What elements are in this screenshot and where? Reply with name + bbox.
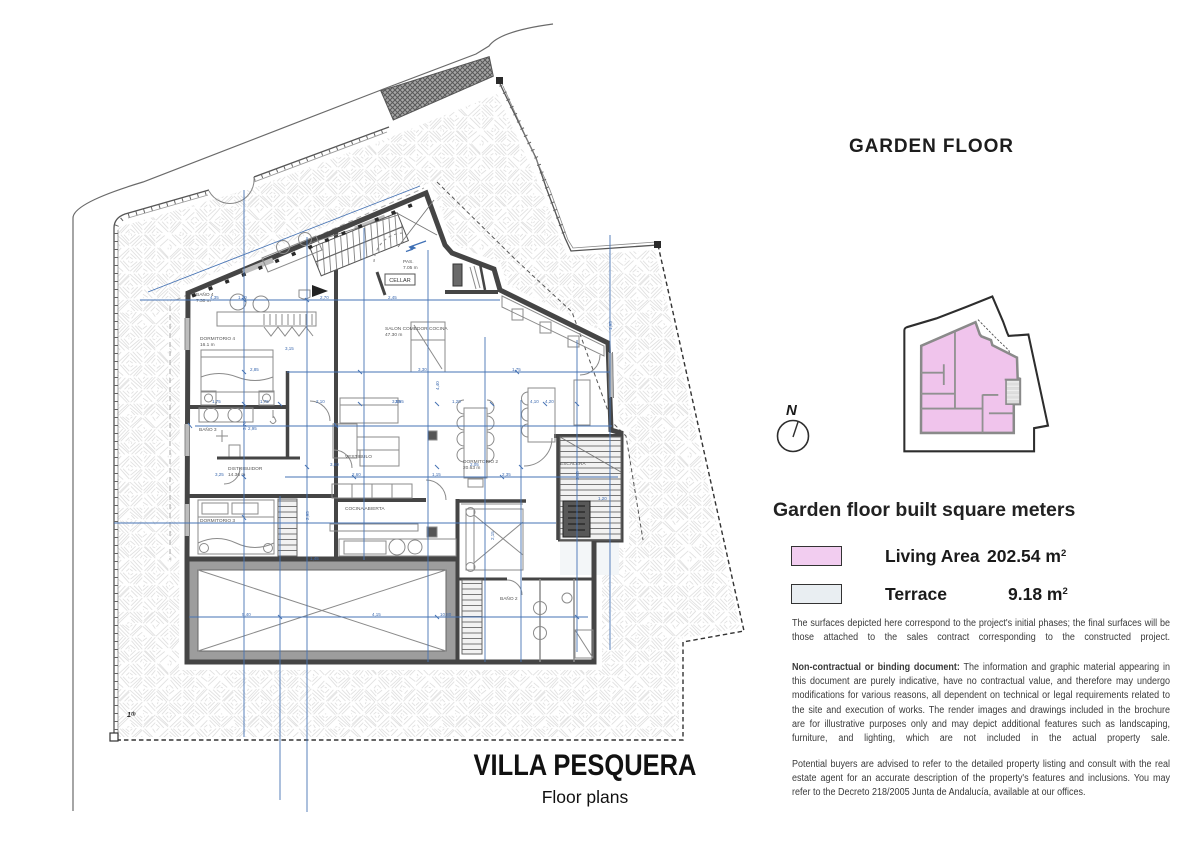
svg-text:BAÑO 3: BAÑO 3 <box>199 426 217 433</box>
svg-text:3,15: 3,15 <box>285 346 294 351</box>
svg-text:1,20: 1,20 <box>452 399 461 404</box>
svg-text:2,85: 2,85 <box>250 367 259 372</box>
svg-text:PAS.: PAS. <box>403 259 414 265</box>
svg-text:1ᵗᵇ: 1ᵗᵇ <box>127 712 136 719</box>
svg-text:SALON COMEDOR COCINA: SALON COMEDOR COCINA <box>385 326 448 332</box>
svg-text:BAÑO 2: BAÑO 2 <box>500 595 518 602</box>
svg-text:10,80: 10,80 <box>440 612 452 617</box>
svg-text:3,05: 3,05 <box>575 471 580 480</box>
svg-text:1,45: 1,45 <box>310 556 319 561</box>
svg-text:1,75: 1,75 <box>260 399 269 404</box>
svg-text:2,95: 2,95 <box>248 426 257 431</box>
svg-text:4,35: 4,35 <box>210 295 219 300</box>
svg-text:ESCALERA: ESCALERA <box>560 461 586 467</box>
svg-text:1,20: 1,20 <box>598 496 607 501</box>
svg-text:3,60: 3,60 <box>330 462 339 467</box>
svg-text:DORMITORIO 4: DORMITORIO 4 <box>200 336 235 342</box>
svg-text:2,45: 2,45 <box>388 295 397 300</box>
svg-text:2,10: 2,10 <box>316 399 325 404</box>
svg-text:3,25: 3,25 <box>215 472 224 477</box>
svg-text:1,75: 1,75 <box>212 399 221 404</box>
svg-text:N: N <box>786 402 798 419</box>
svg-text:5,40: 5,40 <box>242 612 251 617</box>
svg-text:3,70: 3,70 <box>242 421 247 430</box>
svg-text:DORMITORIO 2: DORMITORIO 2 <box>463 459 498 465</box>
svg-text:4,40: 4,40 <box>435 381 440 390</box>
svg-text:4,15: 4,15 <box>372 612 381 617</box>
svg-text:CELLAR: CELLAR <box>389 278 410 284</box>
svg-text:2,95: 2,95 <box>305 511 310 520</box>
svg-text:7.05 m: 7.05 m <box>403 265 418 271</box>
svg-text:1,95: 1,95 <box>608 321 613 330</box>
svg-text:4,10: 4,10 <box>530 399 539 404</box>
svg-text:2,05: 2,05 <box>470 462 479 467</box>
svg-text:3,95: 3,95 <box>392 399 401 404</box>
svg-text:2,35: 2,35 <box>502 472 511 477</box>
svg-text:COCINA ABIERTA: COCINA ABIERTA <box>345 506 385 512</box>
svg-text:1,30: 1,30 <box>238 295 247 300</box>
svg-text:7.30 m: 7.30 m <box>196 298 211 304</box>
svg-text:DISTRIBUIDOR: DISTRIBUIDOR <box>228 466 263 472</box>
svg-text:1,15: 1,15 <box>432 472 441 477</box>
svg-text:VESTIBULO: VESTIBULO <box>345 454 372 460</box>
svg-text:4,20: 4,20 <box>545 399 554 404</box>
svg-text:2,15: 2,15 <box>490 531 495 540</box>
svg-text:2,70: 2,70 <box>320 295 329 300</box>
svg-text:14.36 m: 14.36 m <box>228 472 245 478</box>
svg-text:47.30 m: 47.30 m <box>385 332 402 338</box>
svg-text:16.1 m: 16.1 m <box>200 342 215 348</box>
svg-text:3,30: 3,30 <box>418 367 427 372</box>
